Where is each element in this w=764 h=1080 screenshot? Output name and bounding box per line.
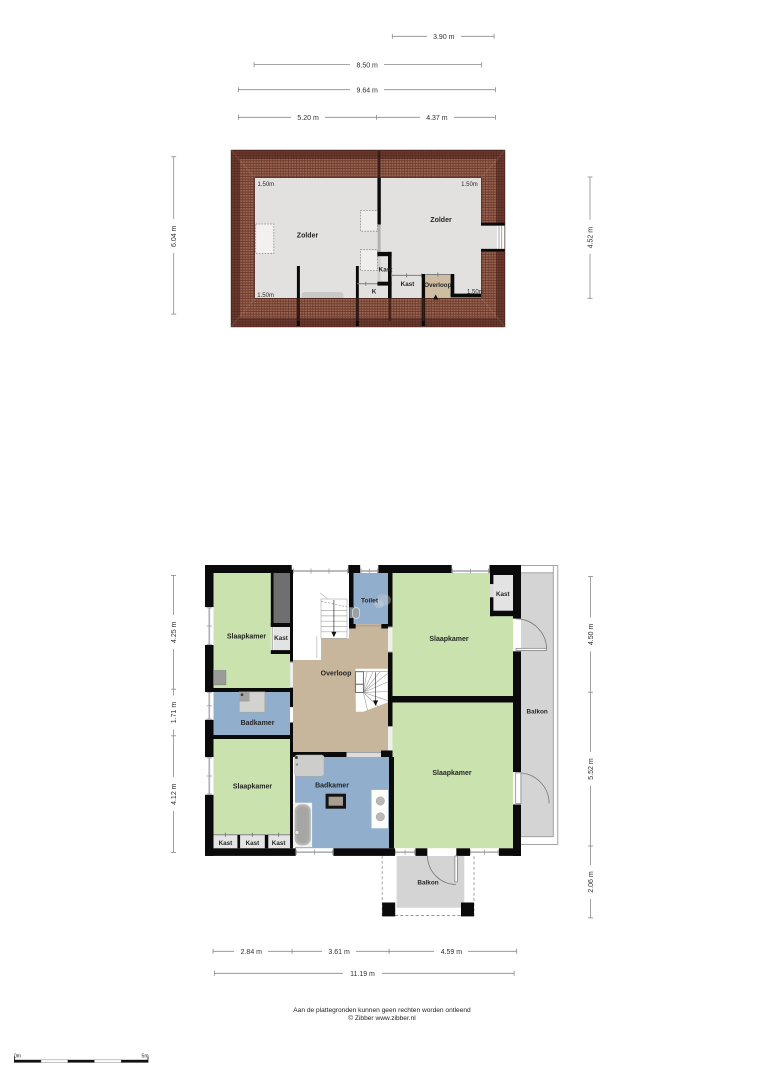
svg-text:1.50m: 1.50m — [461, 182, 478, 188]
svg-text:Balkon: Balkon — [417, 880, 438, 887]
svg-text:Badkamer: Badkamer — [241, 720, 275, 727]
svg-text:4.52 m: 4.52 m — [588, 227, 595, 249]
svg-text:Zolder: Zolder — [430, 217, 452, 224]
svg-text:0m: 0m — [14, 1054, 21, 1060]
svg-text:Kast: Kast — [274, 635, 289, 642]
svg-text:4.59 m: 4.59 m — [441, 949, 463, 956]
svg-text:Slaapkamer: Slaapkamer — [227, 634, 267, 641]
svg-text:5.20 m: 5.20 m — [297, 115, 319, 122]
svg-text:3.90 m: 3.90 m — [433, 34, 455, 41]
svg-text:Kast: Kast — [219, 840, 234, 847]
svg-text:Balkon: Balkon — [527, 708, 548, 715]
svg-text:5m: 5m — [142, 1054, 149, 1060]
svg-text:Zolder: Zolder — [297, 233, 319, 240]
svg-text:8.50 m: 8.50 m — [356, 62, 378, 69]
svg-text:11.19 m: 11.19 m — [350, 971, 375, 978]
svg-text:Overloop: Overloop — [424, 282, 451, 289]
svg-text:4.50 m: 4.50 m — [588, 624, 595, 646]
svg-text:Badkamer: Badkamer — [315, 783, 349, 790]
svg-text:4.37 m: 4.37 m — [426, 115, 448, 122]
svg-text:Slaapkamer: Slaapkamer — [429, 636, 469, 643]
svg-text:3.61 m: 3.61 m — [328, 949, 350, 956]
svg-text:Slaapkamer: Slaapkamer — [233, 784, 273, 791]
svg-text:2.06 m: 2.06 m — [588, 871, 595, 893]
svg-text:Kast: Kast — [272, 840, 287, 847]
svg-text:4.12 m: 4.12 m — [171, 783, 178, 805]
svg-text:1.50m: 1.50m — [257, 293, 274, 299]
svg-text:Toilet: Toilet — [361, 597, 379, 604]
svg-text:K: K — [372, 289, 377, 296]
svg-text:9.64 m: 9.64 m — [356, 87, 378, 94]
svg-text:5.52 m: 5.52 m — [588, 758, 595, 780]
svg-text:2.84 m: 2.84 m — [241, 949, 263, 956]
svg-text:Kast: Kast — [401, 281, 416, 288]
svg-text:6.04 m: 6.04 m — [171, 225, 178, 247]
svg-text:4.25 m: 4.25 m — [171, 621, 178, 643]
svg-text:1.71 m: 1.71 m — [171, 702, 178, 724]
svg-text:© Zibber www.zibber.nl: © Zibber www.zibber.nl — [348, 1014, 416, 1022]
svg-text:Kast: Kast — [379, 267, 394, 274]
svg-text:Overloop: Overloop — [321, 671, 352, 678]
svg-text:Aan de plattegronden kunnen ge: Aan de plattegronden kunnen geen rechten… — [293, 1007, 471, 1014]
svg-text:Kast: Kast — [246, 840, 261, 847]
svg-text:1.50m: 1.50m — [258, 182, 275, 188]
svg-text:Kast: Kast — [496, 591, 511, 598]
svg-text:Slaapkamer: Slaapkamer — [432, 770, 472, 777]
svg-text:1.50m: 1.50m — [467, 290, 484, 296]
